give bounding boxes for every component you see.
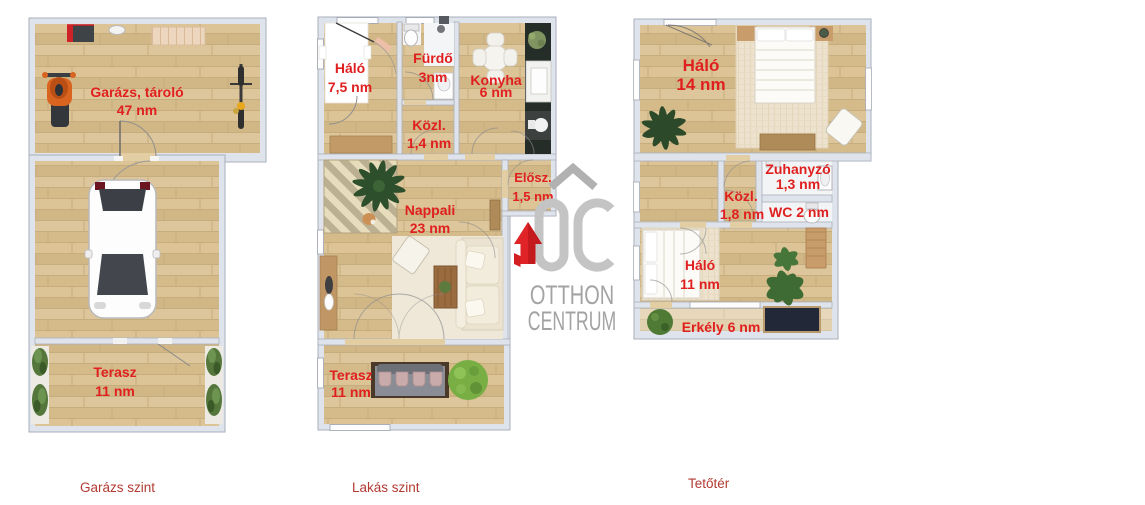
- svg-text:1,4 nm: 1,4 nm: [407, 135, 451, 151]
- svg-text:Garázs, tároló: Garázs, tároló: [90, 84, 183, 100]
- svg-text:23 nm: 23 nm: [410, 220, 450, 236]
- svg-text:Terasz: Terasz: [329, 367, 372, 383]
- svg-text:WC 2 nm: WC 2 nm: [769, 204, 829, 220]
- svg-text:Zuhanyzó: Zuhanyzó: [765, 161, 830, 177]
- svg-text:11 nm: 11 nm: [331, 384, 371, 400]
- svg-text:6 nm: 6 nm: [480, 84, 513, 100]
- svg-text:7,5 nm: 7,5 nm: [328, 79, 372, 95]
- svg-text:1,3 nm: 1,3 nm: [776, 176, 820, 192]
- svg-text:Nappali: Nappali: [405, 202, 456, 218]
- svg-text:Lakás szint: Lakás szint: [352, 480, 420, 495]
- svg-text:Garázs szint: Garázs szint: [80, 480, 155, 495]
- svg-text:Háló: Háló: [683, 56, 720, 75]
- svg-text:14 nm: 14 nm: [676, 75, 725, 94]
- svg-text:Közl.: Közl.: [724, 188, 757, 204]
- svg-text:1,8 nm: 1,8 nm: [720, 206, 764, 222]
- svg-text:Tetőtér: Tetőtér: [688, 476, 730, 491]
- svg-text:Erkély 6 nm: Erkély 6 nm: [682, 319, 761, 335]
- svg-text:Háló: Háló: [685, 257, 715, 273]
- svg-text:Terasz: Terasz: [93, 364, 136, 380]
- svg-text:3nm: 3nm: [419, 69, 448, 85]
- svg-text:Háló: Háló: [335, 60, 365, 76]
- svg-text:CENTRUM: CENTRUM: [528, 305, 616, 336]
- svg-text:Elősz.: Elősz.: [514, 170, 552, 185]
- svg-text:11 nm: 11 nm: [680, 276, 720, 292]
- svg-text:Fürdő: Fürdő: [413, 50, 453, 66]
- svg-text:11 nm: 11 nm: [95, 383, 135, 399]
- svg-text:47 nm: 47 nm: [117, 102, 157, 118]
- svg-text:Közl.: Közl.: [412, 117, 445, 133]
